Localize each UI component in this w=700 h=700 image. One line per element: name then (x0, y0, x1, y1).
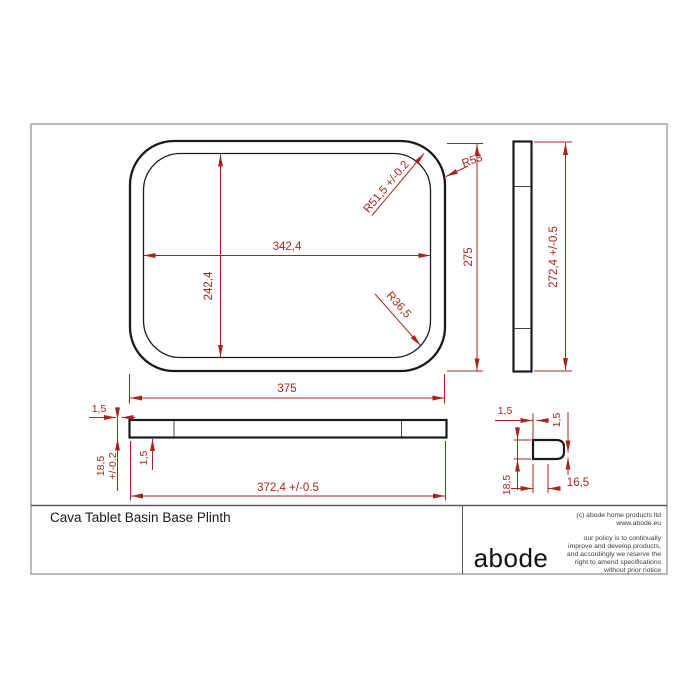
side-view: 272,4 +/-0.5 (514, 142, 573, 372)
dim-section-width (511, 464, 560, 493)
policy-line-3: and accordingly we reserve the (567, 551, 661, 558)
dim-section-height (514, 427, 531, 490)
technical-drawing: 342,4 242,4 275 375 R53 R51,5 +/-0.2 R36… (0, 0, 700, 700)
dim-label-section-height: 18,5 (501, 475, 513, 496)
dim-label-radius-inner: R51,5 +/-0.2 (362, 159, 412, 215)
drawing-sheet: 342,4 242,4 275 375 R53 R51,5 +/-0.2 R36… (0, 0, 700, 700)
policy-line-1: our policy is to continually (584, 535, 662, 542)
drawing-title: Cava Tablet Basin Base Plinth (50, 510, 231, 525)
dim-label-inner-width: 342,4 (273, 241, 302, 253)
dim-label-section-wall-top: 1,5 (498, 405, 513, 417)
dim-label-radius-base: R36,5 (384, 290, 413, 321)
front-profile (130, 420, 447, 438)
dim-label-inner-height: 242,4 (203, 271, 215, 300)
section-view: 1,5 1,5 18,5 16,5 (495, 405, 589, 495)
dim-label-front-top-lip: 1,5 (92, 403, 107, 415)
dim-label-radius-outer: R53 (460, 152, 484, 170)
title-block: Cava Tablet Basin Base Plinth abode (c) … (31, 506, 667, 575)
abode-logo: abode (474, 543, 549, 573)
dim-label-front-thickness: 18,5 (95, 456, 107, 477)
policy-line-2: improve and develop products, (568, 543, 661, 550)
dim-label-outer-width: 375 (277, 383, 296, 395)
dim-label-outer-height: 275 (463, 247, 475, 266)
front-view: 1,5 18,5 +/-0.2 1,5 372,4 +/-0.5 (89, 403, 447, 501)
dim-label-section-wall-right: 1,5 (551, 413, 563, 428)
title-block-fine-print: (c) abode home products ltd www.abode.eu… (567, 512, 662, 574)
dim-label-front-thickness-tol: +/-0.2 (107, 452, 119, 479)
policy-line-5: without prior notice (603, 567, 661, 574)
side-profile (514, 142, 532, 372)
dim-label-section-width: 16,5 (567, 477, 589, 489)
dim-section-wall-top (495, 414, 549, 439)
dim-label-side-height: 272,4 +/-0.5 (548, 226, 560, 288)
sheet-border (31, 124, 667, 574)
copyright-line: (c) abode home products ltd (576, 512, 661, 519)
dim-label-front-bottom-lip: 1,5 (138, 451, 150, 466)
section-profile (533, 440, 564, 459)
policy-line-4: right to amend specifications (575, 559, 662, 566)
website-line: www.abode.eu (615, 520, 661, 527)
top-view: 342,4 242,4 275 375 R53 R51,5 +/-0.2 R36… (130, 141, 485, 404)
dim-label-front-width: 372,4 +/-0.5 (257, 482, 319, 494)
